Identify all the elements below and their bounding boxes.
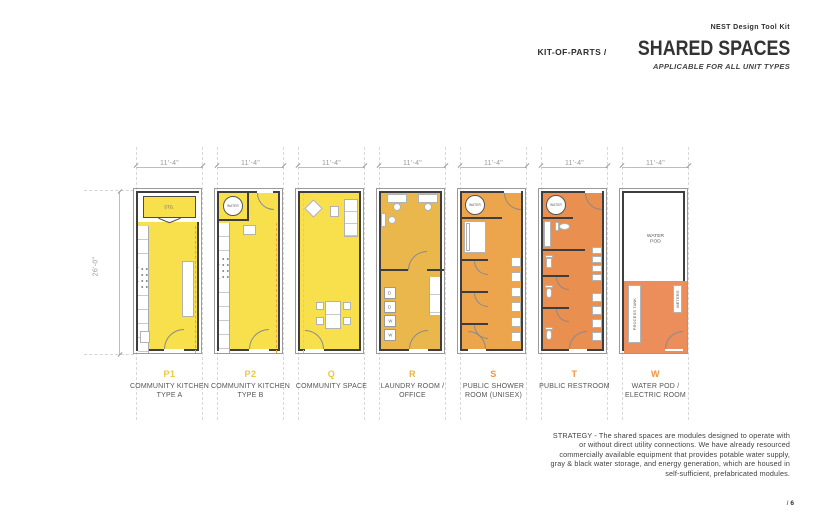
armchair — [304, 199, 322, 217]
washer-label: W — [388, 319, 392, 323]
module-q: 11'-4" Q COMMUNITY SPACE — [298, 147, 365, 400]
dining-table — [325, 301, 341, 329]
page-number-slash: / — [787, 500, 789, 507]
dimension-line — [622, 167, 689, 168]
toilet — [546, 330, 552, 340]
module-name: COMMUNITY SPACE — [290, 382, 373, 391]
door-swing-arc — [305, 330, 324, 349]
door-opening — [305, 349, 324, 351]
door-swing-arc — [164, 329, 184, 349]
partition-wall — [543, 249, 585, 251]
width-dimension: 11'-4" — [379, 147, 446, 191]
water-label: WATER — [227, 204, 239, 207]
folding-counter — [429, 277, 440, 315]
dim-tick — [458, 163, 463, 168]
sink — [511, 332, 521, 342]
storage-room: STG. — [143, 196, 196, 218]
page-number-value: 6 — [790, 500, 794, 507]
floorplan-p2: WATER — [217, 191, 280, 351]
toilet — [546, 258, 552, 268]
dim-tick — [444, 163, 449, 168]
dimension-line — [379, 167, 446, 168]
module-id: T — [541, 369, 608, 379]
module-t: 11'-4" WATER — [541, 147, 608, 400]
height-dim-label: 26'-0" — [93, 250, 100, 284]
dim-tick — [620, 163, 625, 168]
door-swing-arc — [569, 331, 587, 349]
sink — [592, 332, 602, 341]
process-tank-label: PROCESS TANK — [633, 298, 637, 330]
dimension-line — [298, 167, 365, 168]
dryer-label: D — [388, 291, 391, 295]
module-id: R — [379, 369, 446, 379]
width-dim-label: 11'-4" — [565, 160, 584, 167]
width-dim-label: 11'-4" — [241, 160, 260, 167]
partition-wall — [381, 269, 408, 271]
dim-tick — [363, 163, 368, 168]
width-dim-label: 11'-4" — [484, 160, 503, 167]
storage-label: STG. — [165, 205, 175, 209]
water-heater: WATER — [223, 196, 243, 216]
office-chair — [388, 216, 396, 224]
floorplan-p1: STG. — [136, 191, 199, 351]
width-dimension: 11'-4" — [541, 147, 608, 191]
dim-tick — [282, 163, 287, 168]
module-caption: P1 COMMUNITY KITCHEN TYPE A — [136, 369, 203, 400]
subtitle: APPLICABLE FOR ALL UNIT TYPES — [653, 62, 790, 71]
door-opening — [409, 349, 428, 351]
sink — [592, 256, 602, 263]
width-dim-label: 11'-4" — [160, 160, 179, 167]
flex-partition-line — [303, 193, 304, 353]
door-swing-arc — [504, 193, 521, 210]
floorplan-t: WATER — [541, 191, 604, 351]
meters: METERS — [673, 285, 682, 313]
width-dimension: 11'-4" — [217, 147, 284, 191]
equipment-box — [243, 225, 256, 235]
side-table — [330, 206, 339, 217]
washer-label: W — [388, 333, 392, 337]
dryer-label: D — [388, 305, 391, 309]
width-dim-label: 11'-4" — [403, 160, 422, 167]
module-caption: S PUBLIC SHOWER ROOM (UNISEX) — [460, 369, 527, 400]
partition-wall — [427, 269, 444, 271]
door-swing-arc — [408, 251, 427, 270]
title-row: KIT-OF-PARTS / SHARED SPACES — [537, 37, 790, 61]
strategy-text: STRATEGY - The shared spaces are modules… — [548, 431, 790, 478]
width-dimension: 11'-4" — [460, 147, 527, 191]
island-counter — [182, 261, 194, 317]
dim-tick — [215, 163, 220, 168]
sink — [592, 306, 602, 315]
dim-tick — [201, 163, 206, 168]
module-name: WATER POD / ELECTRIC ROOM — [614, 382, 697, 400]
sheet: NEST Design Tool Kit KIT-OF-PARTS / SHAR… — [0, 0, 818, 529]
dim-tick — [377, 163, 382, 168]
width-dimension: 11'-4" — [136, 147, 203, 191]
door-opening — [249, 349, 269, 351]
floorplan-r: D D W W — [379, 191, 442, 351]
module-name: COMMUNITY KITCHEN TYPE A — [128, 382, 211, 400]
water-heater: WATER — [465, 195, 485, 215]
sink — [511, 257, 521, 267]
water-pod-zone: WATER POD — [638, 229, 673, 249]
module-name: COMMUNITY KITCHEN TYPE B — [209, 382, 292, 400]
dim-tick — [539, 163, 544, 168]
width-dim-label: 11'-4" — [322, 160, 341, 167]
module-caption: Q COMMUNITY SPACE — [298, 369, 365, 391]
table-divider — [326, 314, 340, 315]
door-swing-arc — [585, 193, 602, 210]
chair — [343, 317, 351, 325]
door-swing-arc — [474, 293, 488, 307]
dryer: D — [384, 287, 396, 299]
kitchen-counter — [219, 223, 230, 353]
door-opening — [569, 349, 587, 351]
sink — [511, 272, 521, 282]
width-dimension: 11'-4" — [298, 147, 365, 191]
dim-tick — [687, 163, 692, 168]
extension-line — [84, 190, 134, 191]
sink — [511, 317, 521, 327]
sink — [592, 247, 602, 254]
floorplan-q — [298, 191, 361, 351]
dimension-line — [136, 167, 203, 168]
module-name: LAUNDRY ROOM / OFFICE — [371, 382, 454, 400]
washer: W — [384, 315, 396, 327]
water-pod-label: WATER POD — [643, 233, 668, 244]
door-opening — [665, 349, 683, 351]
module-caption: R LAUNDRY ROOM / OFFICE — [379, 369, 446, 400]
module-caption: T PUBLIC RESTROOM — [541, 369, 608, 391]
shelf — [381, 213, 386, 227]
water-label: WATER — [550, 203, 562, 206]
dimension-line — [460, 167, 527, 168]
sink — [592, 274, 602, 281]
page-title: SHARED SPACES — [638, 37, 790, 61]
flex-partition-line — [195, 226, 196, 353]
process-tank: PROCESS TANK — [628, 285, 641, 343]
dimension-line — [217, 167, 284, 168]
door-swing-arc — [249, 329, 269, 349]
water-label: WATER — [469, 203, 481, 206]
module-id: P2 — [217, 369, 284, 379]
toilet — [559, 223, 570, 230]
module-p2: 11'-4" WATER P2 COMMUNITY KITCHEN TYPE B — [217, 147, 284, 400]
equipment-box — [140, 331, 150, 343]
toolkit-label: NEST Design Tool Kit — [711, 24, 790, 31]
height-dimension: 26'-0" — [84, 147, 140, 377]
module-id: P1 — [136, 369, 203, 379]
chair — [343, 302, 351, 310]
modules-row: 11'-4" STG. P1 COMMUNITY KITC — [136, 147, 689, 400]
toilet — [546, 288, 552, 298]
flex-partition-line — [276, 223, 277, 353]
module-name: PUBLIC SHOWER ROOM (UNISEX) — [452, 382, 535, 400]
door-opening — [468, 349, 486, 351]
kicker: KIT-OF-PARTS / — [537, 47, 606, 57]
module-s: 11'-4" WATER — [460, 147, 527, 400]
module-id: Q — [298, 369, 365, 379]
office-desk — [387, 194, 407, 203]
sink — [511, 287, 521, 297]
sink — [511, 302, 521, 312]
cooktop-burners — [139, 265, 148, 291]
floorplan-w: WATER POD PROCESS TANK METERS — [622, 191, 685, 351]
dimension-line — [119, 191, 120, 355]
sofa — [344, 199, 358, 237]
module-name: PUBLIC RESTROOM — [533, 382, 616, 391]
sink — [592, 265, 602, 272]
office-chair — [424, 203, 432, 211]
partition-wall — [462, 217, 502, 219]
grab-bar-wall — [544, 221, 551, 247]
page-number: /6 — [787, 500, 794, 507]
module-caption: P2 COMMUNITY KITCHEN TYPE B — [217, 369, 284, 400]
meters-label: METERS — [676, 290, 680, 307]
floorplan-s: WATER — [460, 191, 523, 351]
chair — [316, 317, 324, 325]
door-swing-arc — [409, 330, 428, 349]
door-swing-arc — [474, 261, 488, 275]
chair — [316, 302, 324, 310]
dimension-line — [541, 167, 608, 168]
dryer: D — [384, 301, 396, 313]
dim-tick — [525, 163, 530, 168]
module-r: 11'-4" D D W W — [379, 147, 446, 400]
module-id: S — [460, 369, 527, 379]
sink — [592, 293, 602, 302]
water-heater: WATER — [546, 195, 566, 215]
module-w: 11'-4" WATER POD PROCESS TANK METERS W — [622, 147, 689, 400]
office-chair — [393, 203, 401, 211]
module-p1: 11'-4" STG. P1 COMMUNITY KITC — [136, 147, 203, 400]
module-id: W — [622, 369, 689, 379]
module-caption: W WATER POD / ELECTRIC ROOM — [622, 369, 689, 400]
door-swing-arc — [257, 193, 274, 210]
door-opening — [164, 349, 184, 351]
width-dimension: 11'-4" — [622, 147, 689, 191]
shower-bench — [466, 223, 470, 251]
width-dim-label: 11'-4" — [646, 160, 665, 167]
washer: W — [384, 329, 396, 341]
dim-tick — [296, 163, 301, 168]
door-swing-arc — [556, 309, 569, 322]
cooktop-burners — [220, 255, 229, 281]
sink — [592, 319, 602, 328]
dim-tick — [606, 163, 611, 168]
office-desk — [418, 194, 438, 203]
extension-line — [84, 354, 134, 355]
partition-wall — [543, 217, 573, 219]
door-swing-arc — [556, 277, 569, 290]
